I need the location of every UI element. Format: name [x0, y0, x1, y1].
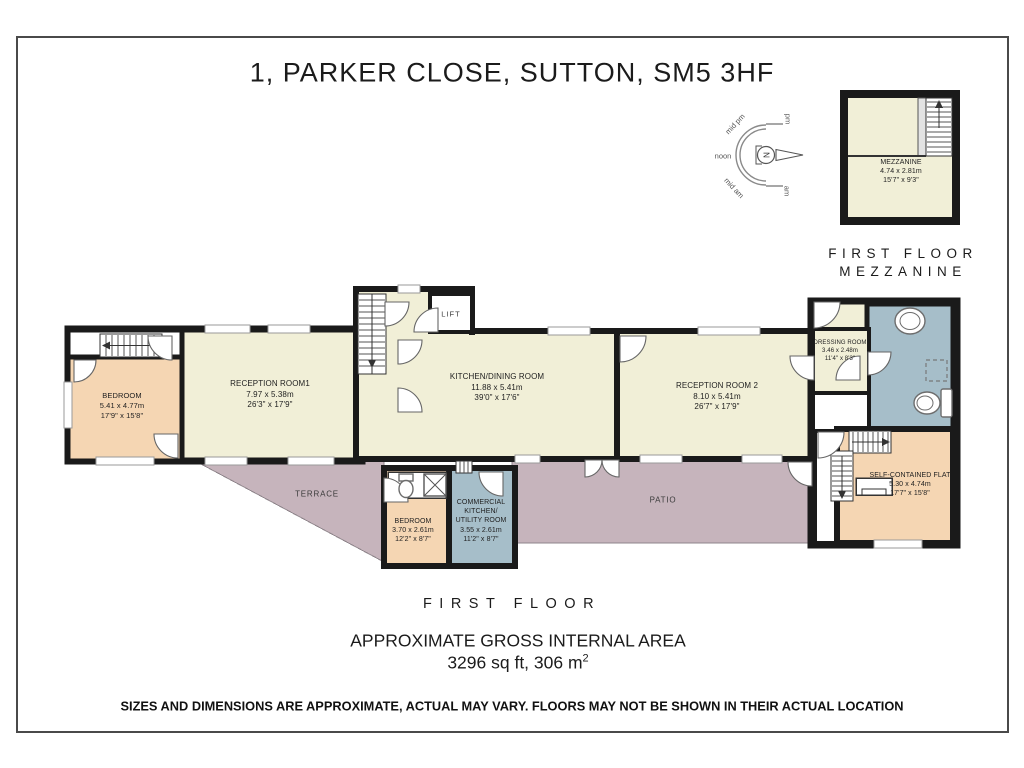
room-label-kitchen: KITCHEN/DINING ROOM 11.88 x 5.41m 39'0" …	[450, 372, 544, 404]
room-name: MEZZANINE	[880, 158, 922, 167]
room-metric: 4.74 x 2.81m	[880, 167, 922, 176]
mezzanine-caption: FIRST FLOOR MEZZANINE	[828, 245, 978, 281]
compass-label-noon: noon	[715, 152, 732, 161]
stairs-flat-vertical	[831, 451, 853, 501]
compass-label-am: am	[783, 186, 792, 196]
stairs-mini-center	[456, 461, 472, 473]
room-label-reception2: RECEPTION ROOM 2 8.10 x 5.41m 26'7" x 17…	[676, 381, 758, 413]
terrace-label: TERRACE	[295, 490, 339, 499]
patio-label: PATIO	[650, 496, 677, 505]
hall-right-area	[813, 393, 869, 431]
lift-label: LIFT	[441, 310, 460, 319]
floor-caption: FIRST FLOOR	[423, 596, 601, 612]
gross-area-title: APPROXIMATE GROSS INTERNAL AREA	[350, 630, 686, 653]
disclaimer-text: SIZES AND DIMENSIONS ARE APPROXIMATE, AC…	[120, 699, 903, 714]
room-label-mezzanine: MEZZANINE 4.74 x 2.81m 15'7" x 9'3"	[880, 158, 922, 186]
room-label-commercial-kitchen: COMMERCIAL KITCHEN/ UTILITY ROOM 3.55 x …	[453, 498, 509, 544]
room-label-bedroom-bottom: BEDROOM 3.70 x 2.61m 12'2" x 8'7"	[392, 517, 434, 545]
toilet-cistern-icon	[941, 389, 952, 417]
compass-north-letter: N	[762, 152, 771, 158]
toilet-icon	[914, 392, 940, 414]
room-imperial: 15'7" x 9'3"	[880, 177, 922, 186]
gross-area-value: 3296 sq ft, 306 m2	[447, 653, 588, 674]
compass-needle	[776, 150, 803, 161]
stairs-flat-horizontal	[849, 431, 891, 453]
compass-label-pm: pm	[784, 114, 793, 124]
room-label-flat: SELF-CONTAINED FLAT 5.30 x 4.74m 17'7" x…	[867, 471, 953, 499]
room-label-dressing: DRESSING ROOM 3.46 x 2.48m 11'4" x 8'3"	[814, 340, 867, 364]
rooms	[68, 289, 957, 566]
terrace-area	[186, 456, 384, 562]
room-label-bedroom-left: BEDROOM 5.41 x 4.77m 17'9" x 15'8"	[100, 391, 145, 421]
main-floorplan	[64, 285, 957, 566]
stairs-center-shaft	[358, 294, 386, 374]
room-label-reception1: RECEPTION ROOM1 7.97 x 5.38m 26'3" x 17'…	[230, 379, 310, 411]
wc-toilet-icon	[399, 481, 413, 498]
